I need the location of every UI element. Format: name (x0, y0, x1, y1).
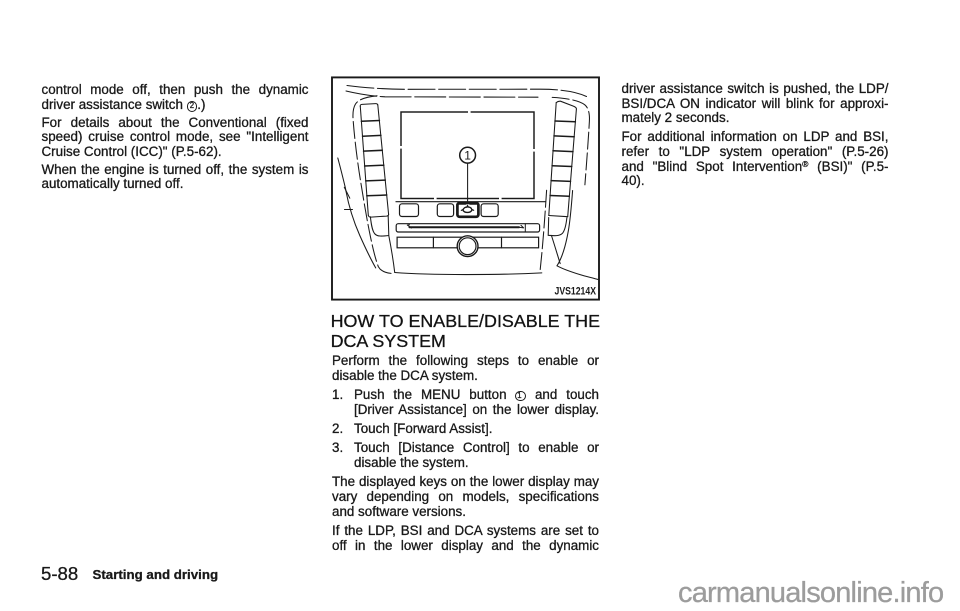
svg-text:1: 1 (464, 149, 471, 163)
svg-text:JVS1214X: JVS1214X (555, 286, 597, 298)
